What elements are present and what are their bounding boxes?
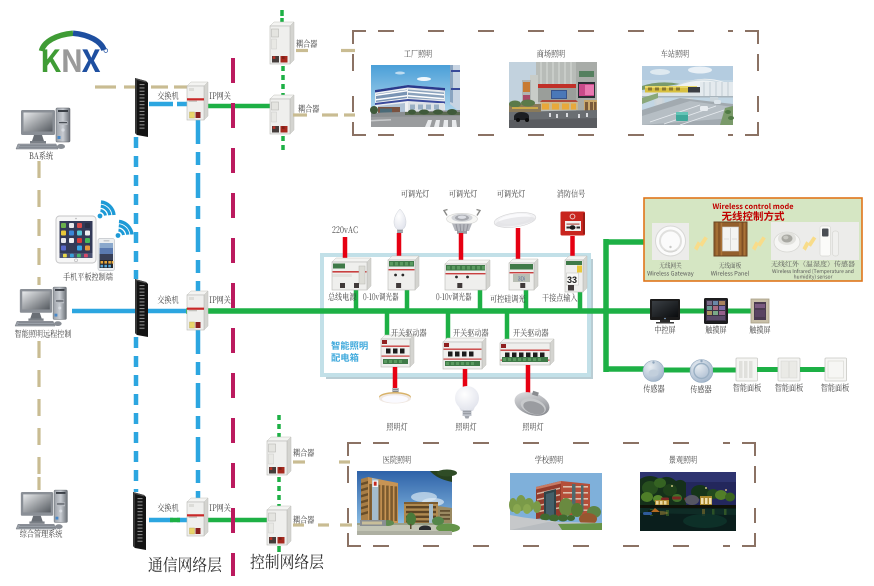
- svg-text:3Di: 3Di: [518, 277, 526, 283]
- svg-text:33: 33: [567, 275, 577, 285]
